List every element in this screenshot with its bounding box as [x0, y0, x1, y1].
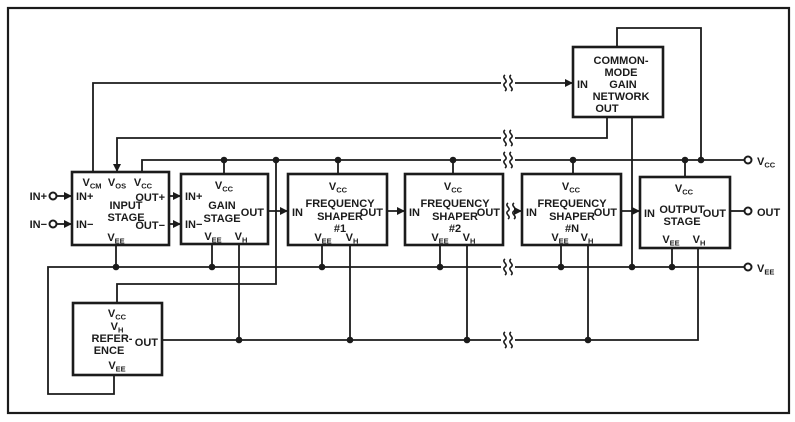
- input-stage-pin-out-plus: OUT+: [135, 192, 165, 204]
- out-terminal-label: OUT: [757, 207, 781, 219]
- junction-dot: [113, 264, 120, 271]
- wire-vcc-rail: [142, 160, 744, 172]
- gain-stage-title-line1: GAIN: [208, 200, 236, 212]
- junction-dot: [209, 264, 216, 271]
- junction-dot: [221, 157, 228, 164]
- output-stage-title-line1: OUTPUT: [659, 204, 705, 216]
- block-frequency-shaper-n: VCC IN FREQUENCY SHAPER #N OUT VEE VH: [522, 174, 621, 246]
- input-stage-pin-in-minus: IN−: [76, 219, 93, 231]
- input-stage-pin-in-plus: IN+: [76, 191, 93, 203]
- junction-dot: [585, 337, 592, 344]
- break-cm-in-line: [501, 75, 515, 91]
- reference-pin-out: OUT: [135, 337, 159, 349]
- wire-vh-rail: [162, 248, 698, 340]
- in-minus-terminal: [50, 221, 57, 228]
- wire-cm-out-to-vos: [117, 117, 607, 172]
- junction-dot: [698, 157, 705, 164]
- output-stage-pin-in: IN: [644, 208, 655, 220]
- block-common-mode-gain-network: IN COMMON- MODE GAIN NETWORK OUT: [573, 47, 663, 117]
- frequency-shaper-1-pin-in: IN: [292, 207, 303, 219]
- junction-dot: [236, 337, 243, 344]
- break-vh-rail: [501, 332, 515, 348]
- output-stage-title-line2: STAGE: [663, 216, 700, 228]
- break-vcc-rail: [501, 152, 515, 168]
- junction-dot: [570, 157, 577, 164]
- vee-terminal: [745, 264, 752, 271]
- vee-terminal-label: VEE: [757, 263, 774, 277]
- block-gain-stage: VCC IN+ IN− GAIN STAGE OUT VEE VH: [181, 174, 268, 245]
- cm-network-title-line3: GAIN: [609, 79, 637, 91]
- junction-dot: [629, 264, 636, 271]
- frequency-shaper-1-pin-out: OUT: [360, 207, 384, 219]
- cm-network-pin-in: IN: [577, 79, 588, 91]
- frequency-shaper-1-title-line2: SHAPER: [317, 211, 363, 223]
- cm-network-title-line2: MODE: [605, 67, 638, 79]
- block-reference: VCC VH REFER- ENCE OUT VEE: [73, 303, 162, 375]
- junction-dot: [558, 264, 565, 271]
- frequency-shaper-n-title-line2: SHAPER: [549, 211, 595, 223]
- break-vee-rail: [501, 259, 515, 275]
- frequency-shaper-2-pin-in: IN: [409, 207, 420, 219]
- gain-stage-title-line2: STAGE: [203, 213, 240, 225]
- frequency-shaper-n-title-line3: #N: [565, 223, 579, 235]
- in-minus-terminal-label: IN−: [30, 219, 47, 231]
- junction-dot: [682, 157, 689, 164]
- junction-dot: [335, 157, 342, 164]
- frequency-shaper-2-title-line2: SHAPER: [432, 211, 478, 223]
- junction-dot: [273, 157, 280, 164]
- cm-network-title-line1: COMMON-: [594, 55, 649, 67]
- reference-title-line1: REFER-: [92, 333, 133, 345]
- frequency-shaper-1-title-line3: #1: [334, 223, 346, 235]
- vcc-terminal-label: VCC: [757, 156, 776, 170]
- input-stage-pin-out-minus: OUT−: [135, 220, 165, 232]
- junction-dot: [437, 264, 444, 271]
- gain-stage-pin-out: OUT: [241, 207, 265, 219]
- block-input-stage: VCM VOS VCC IN+ IN− INPUT STAGE OUT+ OUT…: [72, 172, 169, 246]
- out-terminal: [745, 208, 752, 215]
- block-frequency-shaper-1: VCC IN FREQUENCY SHAPER #1 OUT VEE VH: [288, 174, 387, 246]
- vcc-terminal: [745, 157, 752, 164]
- block-diagram-page: VCM VOS VCC IN+ IN− INPUT STAGE OUT+ OUT…: [0, 0, 795, 422]
- frequency-shaper-n-pin-in: IN: [526, 207, 537, 219]
- in-plus-terminal-label: IN+: [30, 191, 47, 203]
- junction-dot: [319, 264, 326, 271]
- output-stage-pin-out: OUT: [703, 208, 727, 220]
- gain-stage-pin-in-plus: IN+: [185, 191, 202, 203]
- junction-dot: [669, 264, 676, 271]
- frequency-shaper-n-pin-out: OUT: [594, 207, 618, 219]
- break-cm-out-line: [501, 130, 515, 146]
- gain-stage-pin-in-minus: IN−: [185, 219, 202, 231]
- block-frequency-shaper-2: VCC IN FREQUENCY SHAPER #2 OUT VEE VH: [405, 174, 503, 246]
- block-output-stage: VCC IN OUTPUT STAGE OUT VEE VH: [640, 177, 730, 248]
- junction-dot: [450, 157, 457, 164]
- cm-network-pin-out: OUT: [595, 103, 619, 115]
- block-diagram: VCM VOS VCC IN+ IN− INPUT STAGE OUT+ OUT…: [0, 0, 795, 422]
- in-plus-terminal: [50, 193, 57, 200]
- reference-title-line2: ENCE: [94, 345, 125, 357]
- junction-dot: [347, 337, 354, 344]
- frequency-shaper-2-pin-out: OUT: [477, 207, 501, 219]
- cm-network-title-line4: NETWORK: [593, 91, 650, 103]
- frequency-shaper-2-title-line3: #2: [449, 223, 461, 235]
- junction-dot: [464, 337, 471, 344]
